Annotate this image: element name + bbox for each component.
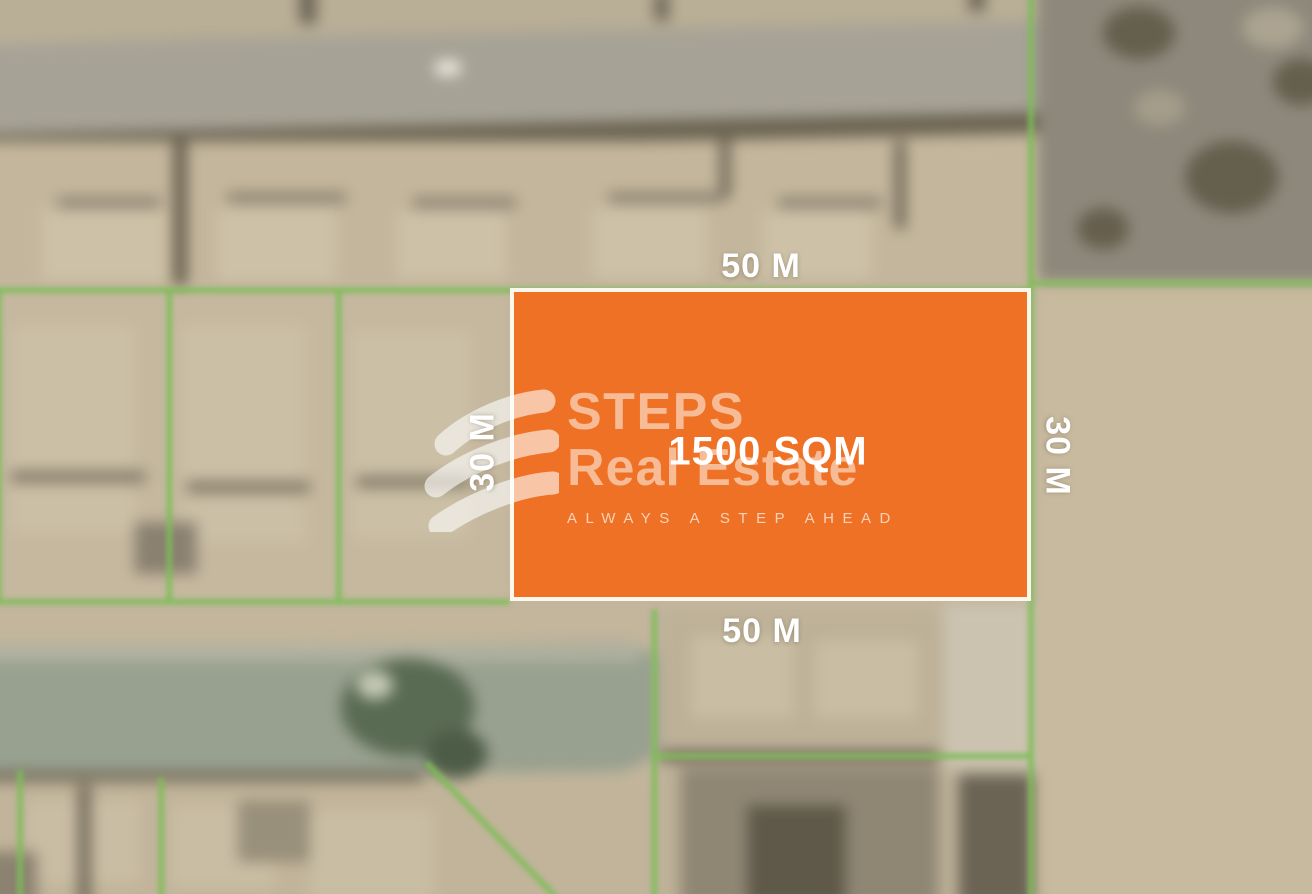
plot-boundary-line [1033,281,1312,286]
dimension-label-top: 50 M [721,247,801,286]
plot-boundary-line [0,599,510,604]
watermark-tagline: ALWAYS A STEP AHEAD [567,510,899,527]
plot-boundary-line [336,290,341,602]
plot-boundary-line [424,761,569,894]
plot-boundary-line [652,754,1031,759]
plot-size-label: 1500 SQM [668,430,867,475]
land-plot-listing-image: STEPS Real Estate ALWAYS A STEP AHEAD 15… [0,0,1312,894]
plot-boundary-line [167,290,172,602]
dimension-label-right: 30 M [1038,416,1077,496]
plot-boundary-line [652,609,657,894]
plot-boundary-line [159,778,164,894]
plot-boundary-line [0,290,1,602]
dimension-label-left: 30 M [464,412,503,492]
plot-boundary-line [18,770,23,894]
dimension-label-bottom: 50 M [722,612,802,651]
